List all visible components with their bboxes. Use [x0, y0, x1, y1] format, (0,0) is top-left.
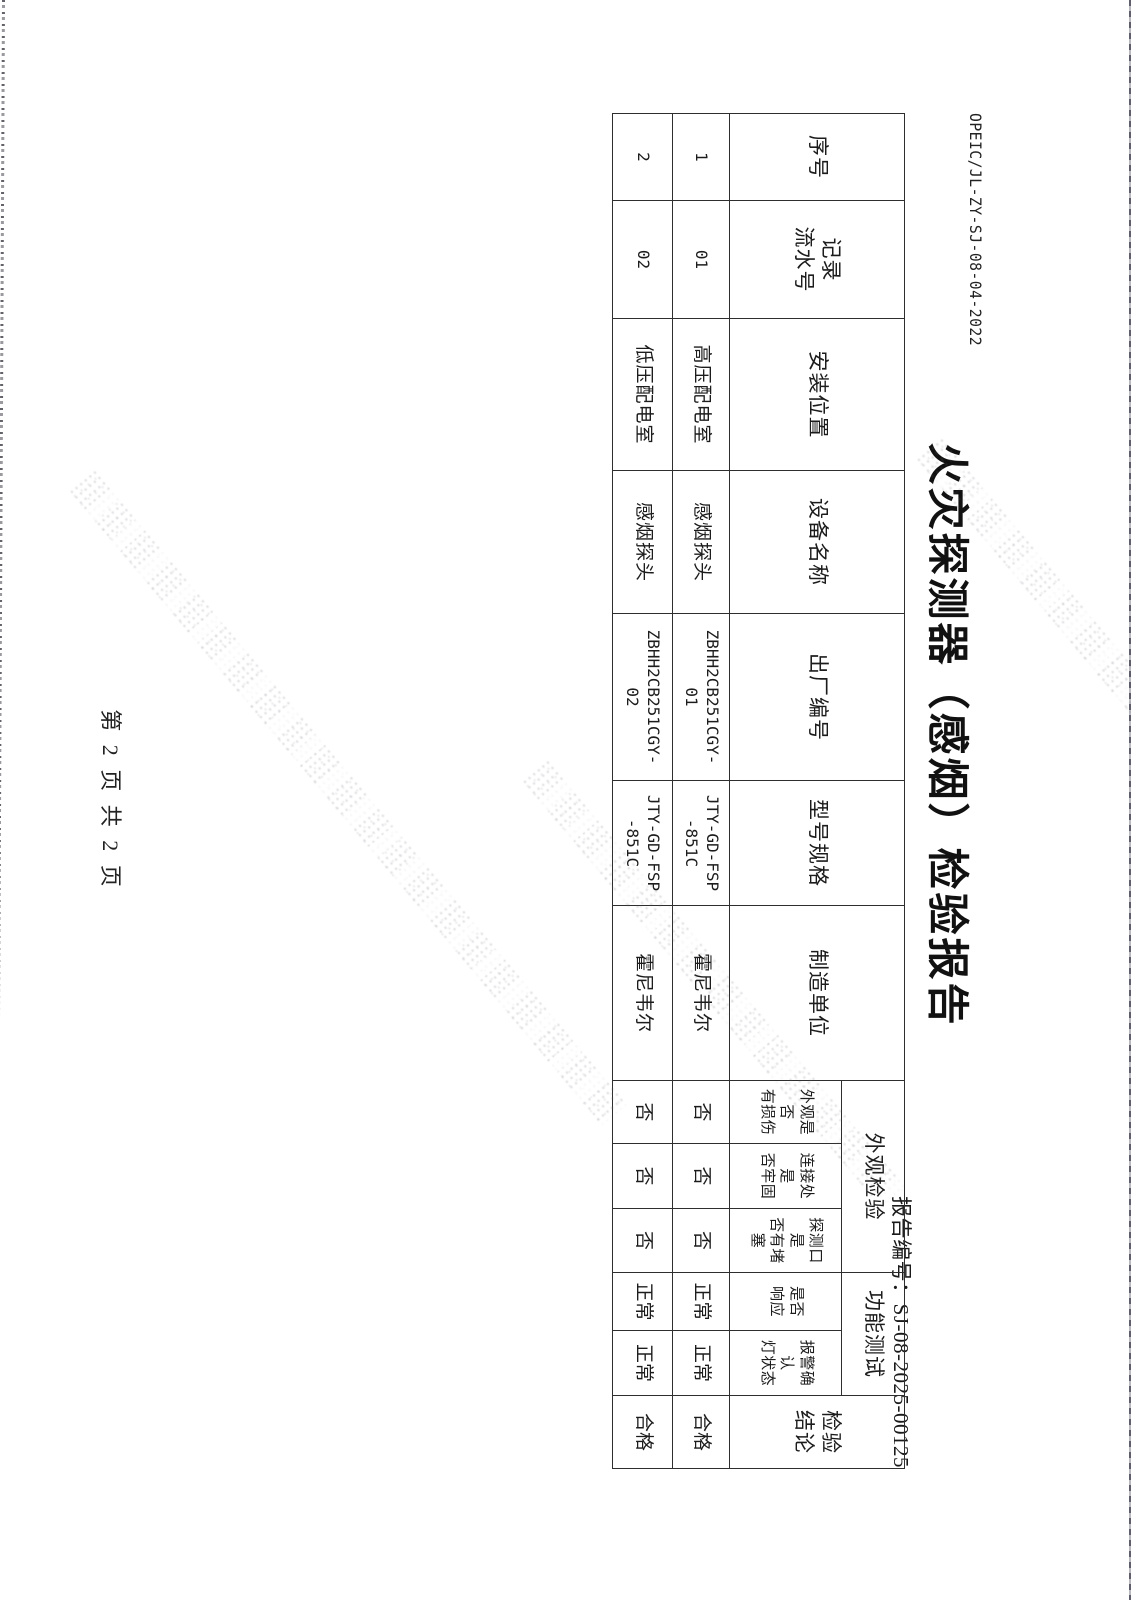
cell-device-name: 感烟探头	[673, 471, 730, 614]
page-title: 火灾探测器（感烟）检验报告	[920, 0, 981, 1470]
cell-appearance-damage: 否	[673, 1081, 730, 1144]
header-sub-port-blocked: 探测口是 否有堵塞	[730, 1209, 842, 1273]
header-group-function: 功能测试	[842, 1273, 905, 1396]
cell-alarm-light: 正常	[673, 1331, 730, 1396]
cell-device-name: 感烟探头	[613, 471, 673, 614]
header-sub-connection-firm: 连接处是 否牢固	[730, 1144, 842, 1209]
cell-port-blocked: 否	[673, 1209, 730, 1273]
cell-record-no: 01	[673, 201, 730, 319]
cell-port-blocked: 否	[613, 1209, 673, 1273]
scanned-page: { "page": { "doc_code": "OPEIC/JL-ZY-SJ-…	[0, 0, 1131, 1600]
cell-factory-no: ZBHH2CB251CGY- 02	[613, 614, 673, 781]
cell-alarm-light: 正常	[613, 1331, 673, 1396]
header-sub-response: 是否 响应	[730, 1273, 842, 1331]
cell-record-no: 02	[613, 201, 673, 319]
cell-connection-firm: 否	[613, 1144, 673, 1209]
cell-seq: 2	[613, 114, 673, 201]
header-device-name: 设备名称	[730, 471, 905, 614]
header-seq: 序号	[730, 114, 905, 201]
cell-install-location: 高压配电室	[673, 319, 730, 471]
cell-conclusion: 合格	[613, 1396, 673, 1469]
header-record-no: 记录 流水号	[730, 201, 905, 319]
cell-seq: 1	[673, 114, 730, 201]
header-install-location: 安装位置	[730, 319, 905, 471]
inspection-table: 序号 记录 流水号 安装位置 设备名称 出厂编号 型号规格 制造单位 外观检验 …	[612, 113, 905, 1469]
cell-factory-no: ZBHH2CB251CGY- 01	[673, 614, 730, 781]
header-sub-alarm-light: 报警确认 灯状态	[730, 1331, 842, 1396]
cell-install-location: 低压配电室	[613, 319, 673, 471]
header-factory-no: 出厂编号	[730, 614, 905, 781]
cell-appearance-damage: 否	[613, 1081, 673, 1144]
page-number-footer: 第 2 页 共 2 页	[96, 0, 128, 1600]
table-row: 2 02 低压配电室 感烟探头 ZBHH2CB251CGY- 02 JTY-GD…	[613, 114, 673, 1469]
header-conclusion: 检验 结论	[730, 1396, 905, 1469]
header-model-spec: 型号规格	[730, 781, 905, 906]
cell-response: 正常	[613, 1273, 673, 1331]
table-row: 1 01 高压配电室 感烟探头 ZBHH2CB251CGY- 01 JTY-GD…	[673, 114, 730, 1469]
cell-connection-firm: 否	[673, 1144, 730, 1209]
cell-model-spec: JTY-GD-FSP -851C	[673, 781, 730, 906]
cell-response: 正常	[673, 1273, 730, 1331]
cell-conclusion: 合格	[673, 1396, 730, 1469]
